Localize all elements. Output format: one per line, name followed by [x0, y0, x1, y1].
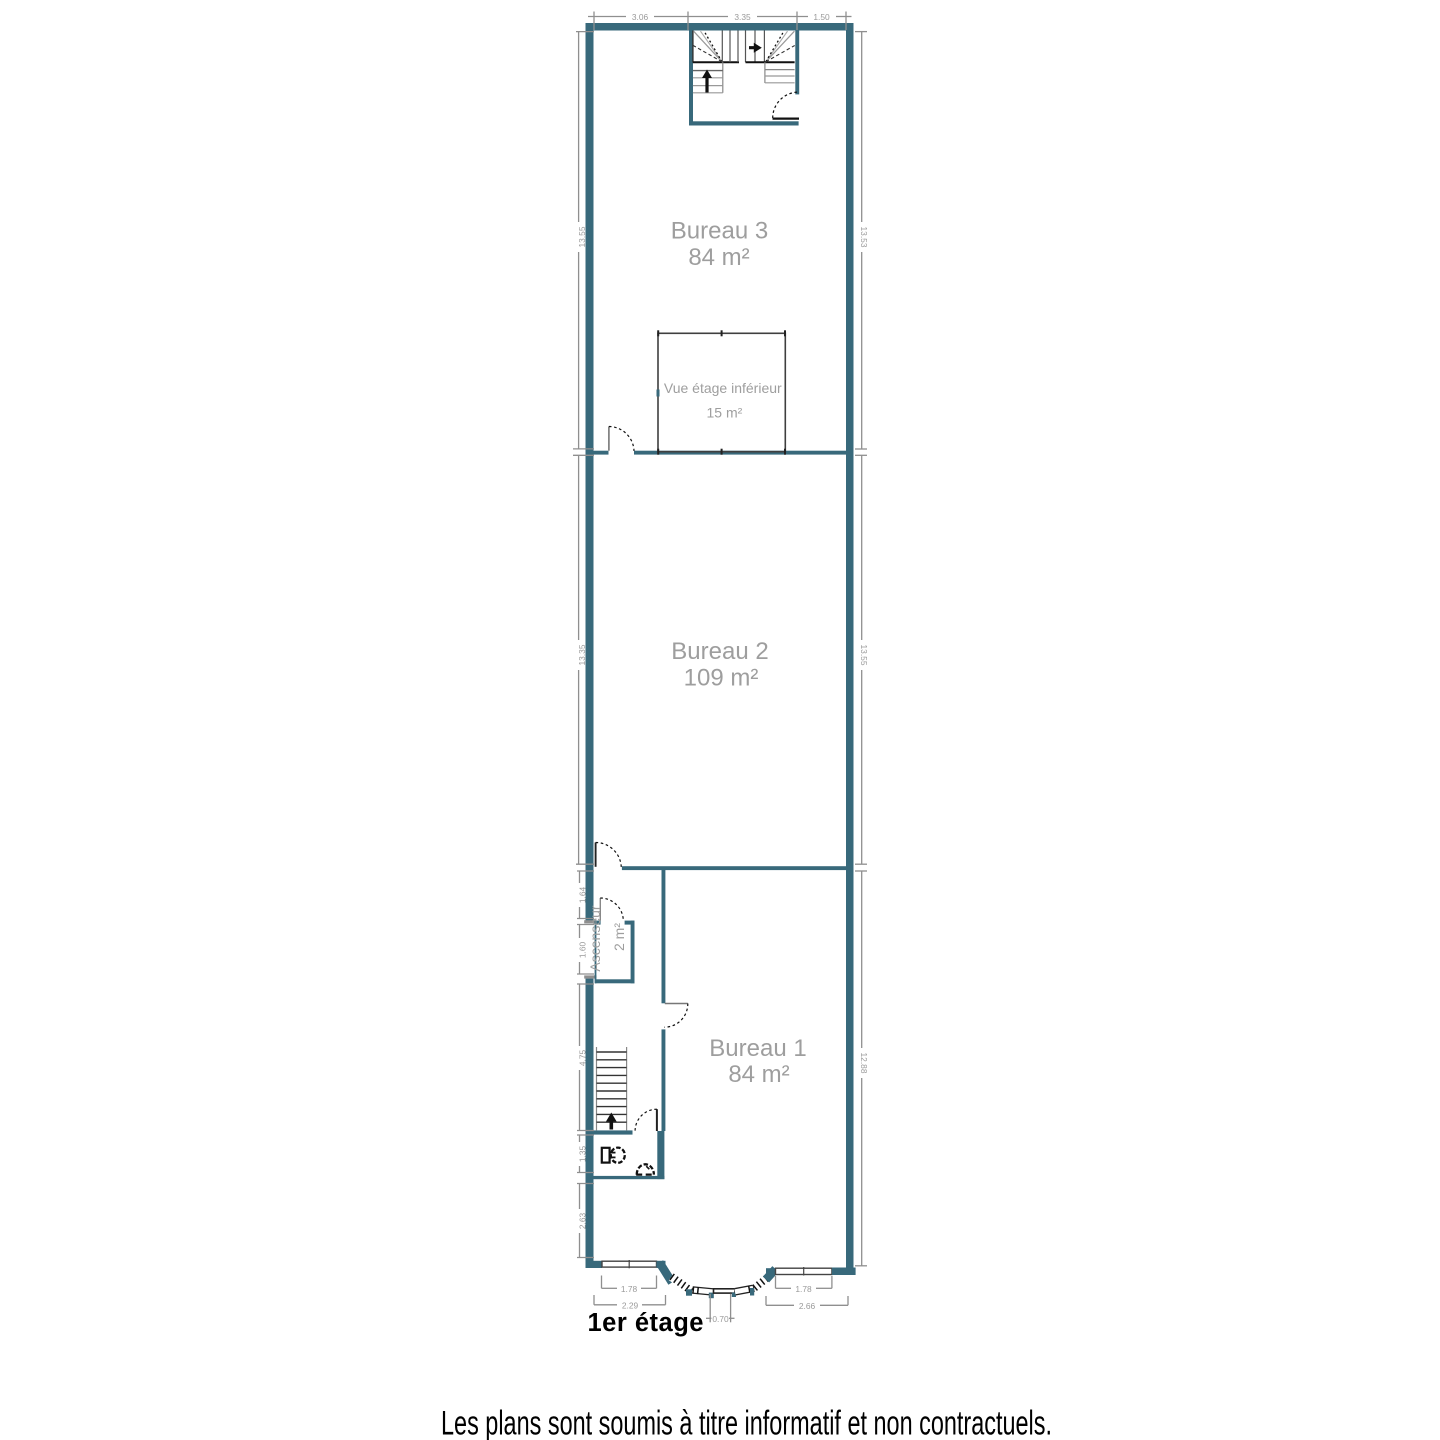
svg-text:15 m²: 15 m²: [707, 405, 743, 421]
svg-text:1er étage: 1er étage: [588, 1309, 705, 1337]
svg-text:13.35: 13.35: [577, 644, 587, 665]
svg-text:Vue étage inférieur: Vue étage inférieur: [664, 380, 782, 396]
svg-text:Bureau 3: Bureau 3: [671, 218, 768, 245]
svg-text:13.55: 13.55: [577, 226, 587, 247]
svg-text:Les plans sont soumis à titre: Les plans sont soumis à titre informatif…: [441, 1405, 1052, 1440]
svg-text:1.35: 1.35: [578, 1146, 588, 1163]
svg-text:1.64: 1.64: [578, 887, 588, 904]
svg-text:1.60: 1.60: [578, 942, 588, 959]
svg-text:0.70: 0.70: [712, 1314, 729, 1324]
svg-text:12.88: 12.88: [859, 1053, 869, 1074]
svg-text:13.53: 13.53: [859, 227, 869, 248]
svg-text:84 m²: 84 m²: [688, 244, 749, 271]
svg-text:2 m²: 2 m²: [611, 923, 627, 951]
svg-text:Ascenseur: Ascenseur: [587, 905, 603, 971]
svg-text:3.06: 3.06: [632, 12, 649, 22]
svg-text:Bureau 1: Bureau 1: [709, 1035, 806, 1062]
svg-text:2.63: 2.63: [578, 1213, 588, 1230]
svg-text:3.35: 3.35: [734, 12, 751, 22]
svg-text:Bureau 2: Bureau 2: [671, 638, 768, 665]
svg-text:1.50: 1.50: [813, 12, 830, 22]
svg-text:13.55: 13.55: [859, 645, 869, 666]
svg-text:4.75: 4.75: [578, 1050, 588, 1067]
svg-text:84 m²: 84 m²: [728, 1061, 789, 1088]
svg-text:109 m²: 109 m²: [684, 665, 759, 692]
svg-text:2.66: 2.66: [799, 1301, 816, 1311]
svg-text:1.78: 1.78: [621, 1284, 638, 1294]
svg-text:1.78: 1.78: [795, 1284, 812, 1294]
